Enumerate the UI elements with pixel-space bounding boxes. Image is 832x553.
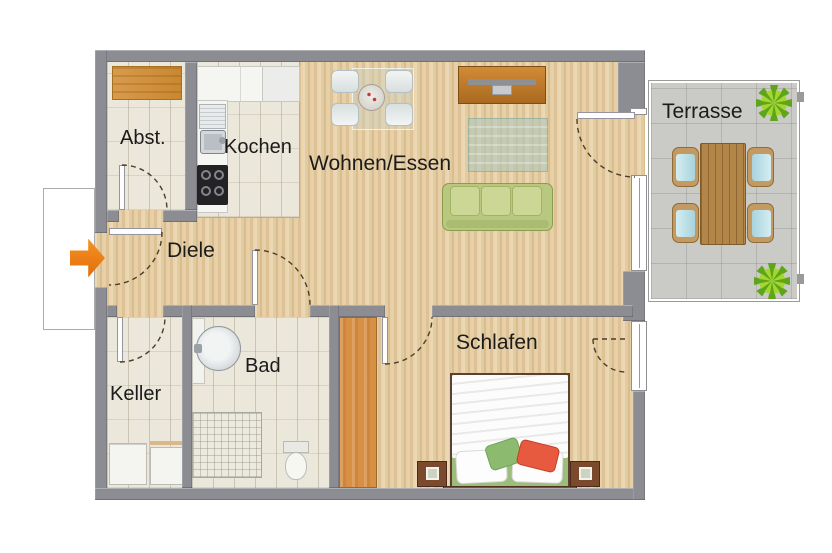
burner	[214, 170, 224, 180]
wall-keller-right	[182, 305, 192, 488]
abst-door-leaf	[119, 165, 125, 210]
keller-door-leaf	[117, 317, 123, 362]
chair-seat	[676, 210, 695, 237]
chair-seat	[752, 154, 771, 181]
sofa-cushion	[481, 186, 511, 216]
burner	[201, 186, 211, 196]
kitchen-cabinet-divider	[240, 67, 241, 101]
dining-chair	[385, 103, 413, 126]
kitchen-fridge	[262, 66, 300, 102]
wardrobe	[339, 317, 377, 488]
rug	[468, 118, 548, 172]
wall-corridor-d	[432, 305, 633, 317]
wall-left-upper	[95, 50, 107, 233]
room-label-wohnen: Wohnen/Essen	[309, 153, 451, 174]
terrace-chair	[747, 203, 774, 243]
wall-corridor-c	[310, 305, 385, 317]
wall-left-lower	[95, 287, 107, 500]
plant-icon	[755, 84, 793, 122]
terrace-chair	[747, 147, 774, 187]
nightstand	[570, 461, 600, 487]
chair-seat	[752, 210, 771, 237]
room-label-keller: Keller	[110, 384, 161, 404]
sofa-backrest	[446, 220, 549, 228]
wall-corridor-b	[163, 305, 255, 317]
dining-chair	[331, 103, 359, 126]
window-bedroom	[631, 321, 647, 391]
room-label-bad: Bad	[245, 356, 281, 376]
plant-icon	[753, 262, 791, 300]
window-pane	[639, 178, 640, 268]
sink-drainer	[199, 104, 226, 129]
wall-abst-bottom-a	[107, 210, 119, 222]
sofa-cushion	[512, 186, 542, 216]
nightstand-decor	[579, 467, 592, 480]
room-label-kochen: Kochen	[224, 137, 292, 157]
wall-right-lower	[633, 391, 645, 500]
dryer	[150, 447, 183, 485]
sofa-cushion	[450, 186, 480, 216]
room-label-terrasse: Terrasse	[662, 101, 743, 122]
nightstand	[417, 461, 447, 487]
terrace-table	[700, 143, 746, 245]
bathroom-sink	[196, 326, 241, 371]
dining-chair	[385, 70, 413, 93]
table-centerpiece	[358, 84, 385, 111]
window-pane	[639, 324, 640, 388]
room-label-abst: Abst.	[120, 128, 166, 148]
terrace-post	[797, 92, 804, 102]
room-label-diele: Diele	[167, 240, 215, 261]
wall-corridor-a	[107, 305, 117, 317]
floor-plan: Abst. Kochen Wohnen/Essen Diele Keller B…	[0, 0, 832, 553]
terrace-post	[797, 274, 804, 284]
chair-seat	[676, 154, 695, 181]
room-label-schlafen: Schlafen	[456, 332, 538, 353]
toilet-bowl	[285, 452, 307, 480]
nightstand-decor	[426, 467, 439, 480]
wall-bottom	[95, 488, 645, 500]
terrace-chair	[672, 147, 699, 187]
shower	[192, 412, 262, 478]
wall-top	[95, 50, 645, 62]
terrace-door-leaf	[577, 112, 635, 119]
terrace-chair	[672, 203, 699, 243]
washing-machine	[109, 443, 147, 485]
wall-abst-right	[185, 62, 197, 210]
wall-bad-right	[329, 305, 339, 488]
storage-shelf	[112, 66, 182, 100]
schlafen-door-leaf	[382, 317, 388, 364]
dining-chair	[331, 70, 359, 93]
bad-door-leaf	[252, 250, 258, 305]
burner	[214, 186, 224, 196]
tv-stand	[492, 85, 512, 95]
entrance-door-leaf	[109, 228, 162, 235]
sink-faucet	[194, 344, 202, 353]
shelf-strip	[150, 441, 183, 445]
wall-abst-bottom-b	[163, 210, 197, 222]
window-living	[631, 175, 647, 271]
burner	[201, 170, 211, 180]
